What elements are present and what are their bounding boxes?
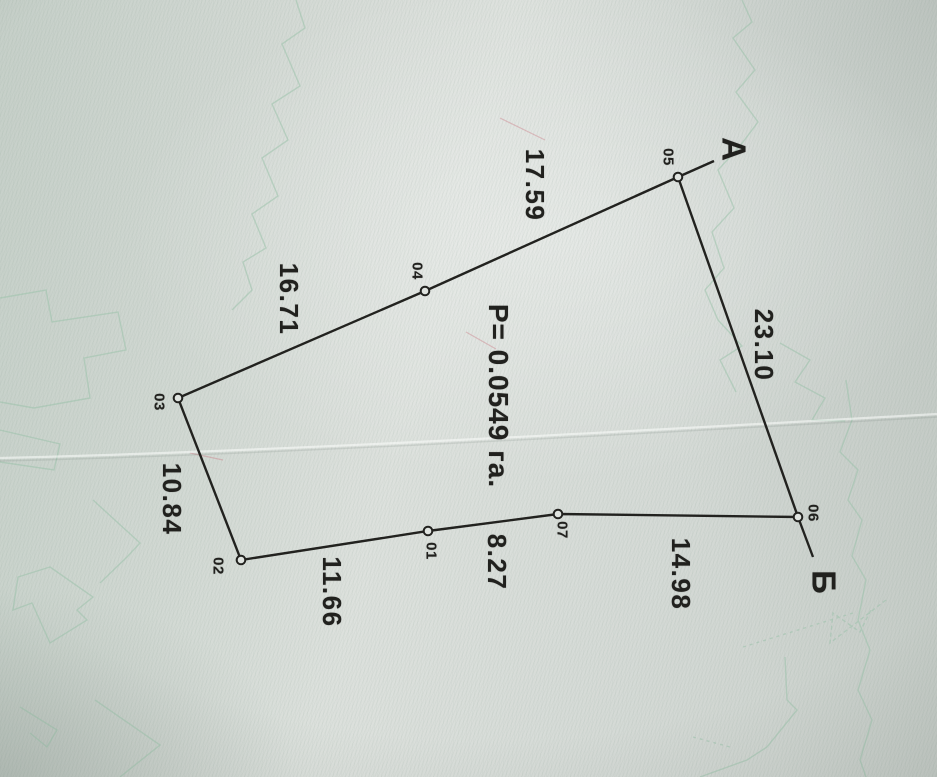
side-length-01-02: 11.66 bbox=[319, 556, 345, 627]
extension-line-b bbox=[798, 517, 813, 557]
direction-label-a: А bbox=[718, 137, 751, 161]
vertex-05-marker bbox=[674, 173, 683, 182]
vertex-06-marker bbox=[794, 513, 803, 522]
vertex-label-05: 05 bbox=[661, 148, 676, 166]
vertex-01-marker bbox=[424, 527, 433, 536]
vertex-03-marker bbox=[174, 394, 183, 403]
vertex-label-06: 06 bbox=[806, 504, 821, 522]
area-label: P= 0.0549 га. bbox=[484, 304, 512, 488]
survey-plan-photo: 01 02 03 04 05 06 07 23.10 14.98 8.27 11… bbox=[0, 0, 937, 777]
side-length-03-04: 16.71 bbox=[276, 263, 302, 336]
paper-crease bbox=[0, 414, 937, 461]
side-length-06-07: 14.98 bbox=[668, 538, 694, 611]
side-length-07-01: 8.27 bbox=[484, 534, 510, 591]
vertex-label-04: 04 bbox=[410, 262, 425, 280]
vertex-07-marker bbox=[554, 510, 563, 519]
extension-line-a bbox=[678, 161, 714, 177]
vertex-04-marker bbox=[421, 287, 430, 296]
vertex-label-02: 02 bbox=[211, 557, 226, 575]
side-length-05-06: 23.10 bbox=[751, 309, 777, 382]
vertex-02-marker bbox=[237, 556, 246, 565]
vertex-label-07: 07 bbox=[555, 521, 570, 539]
direction-label-b: Б bbox=[808, 570, 841, 594]
vertex-label-01: 01 bbox=[424, 542, 439, 560]
plan-drawing bbox=[0, 0, 937, 777]
vertex-label-03: 03 bbox=[152, 393, 167, 411]
side-length-04-05: 17.59 bbox=[522, 149, 548, 222]
side-length-02-03: 10.84 bbox=[159, 463, 185, 536]
